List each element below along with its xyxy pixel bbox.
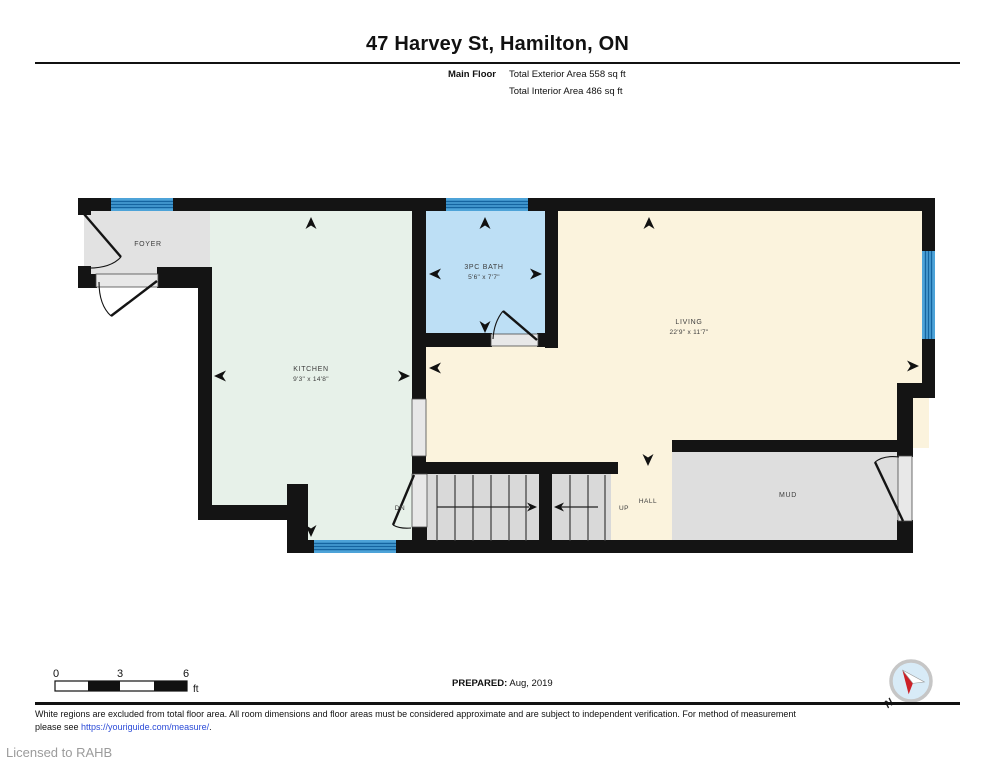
stairs-door-opening <box>412 474 427 527</box>
measure-link[interactable]: https://youriguide.com/measure/ <box>81 722 209 732</box>
mud-label: MUD <box>779 492 797 499</box>
stairs-up-label: UP <box>619 505 629 512</box>
disclaimer-line2-prefix: please see <box>35 722 81 732</box>
scale-tick-0: 0 <box>53 668 59 680</box>
living-window <box>922 251 935 339</box>
living-label: LIVING <box>675 319 702 326</box>
scale-tick-3: 3 <box>117 668 123 680</box>
foyer-rear-threshold <box>96 274 158 287</box>
license-text: Licensed to RAHB <box>6 745 112 760</box>
living-dims: 22'9" x 11'7" <box>669 329 708 336</box>
foyer-window <box>111 198 173 211</box>
scale-bar: 0 3 6 ft <box>53 668 199 695</box>
disclaimer-line1: White regions are excluded from total fl… <box>35 709 796 719</box>
floor-plan-page: 47 Harvey St, Hamilton, ON Main Floor To… <box>0 0 995 768</box>
kitchen-floor <box>210 204 420 516</box>
footer-divider <box>35 702 960 705</box>
disclaimer-text: White regions are excluded from total fl… <box>35 708 960 734</box>
stairs-down-label: DN <box>395 505 405 512</box>
foyer-label: FOYER <box>134 241 162 248</box>
bath-label: 3PC BATH <box>464 264 503 271</box>
kitchen-label: KITCHEN <box>293 366 329 373</box>
prepared-date: PREPARED: Aug, 2019 <box>452 678 553 689</box>
kitchen-window <box>314 540 396 553</box>
bath-dims: 5'6" x 7'7" <box>468 274 500 281</box>
scale-tick-6: 6 <box>183 668 189 680</box>
scale-unit: ft <box>193 684 199 695</box>
bath-window <box>446 198 528 211</box>
floor-plan-drawing: FOYER KITCHEN 9'3" x 14'8" 3PC BATH 5'6"… <box>0 0 995 768</box>
living-floor-lower <box>419 340 625 470</box>
hall-label: HALL <box>639 498 657 505</box>
kitchen-living-opening <box>412 399 426 456</box>
disclaimer-line2-suffix: . <box>209 722 212 732</box>
mud-door-opening <box>898 456 912 521</box>
kitchen-dims: 9'3" x 14'8" <box>293 376 329 383</box>
